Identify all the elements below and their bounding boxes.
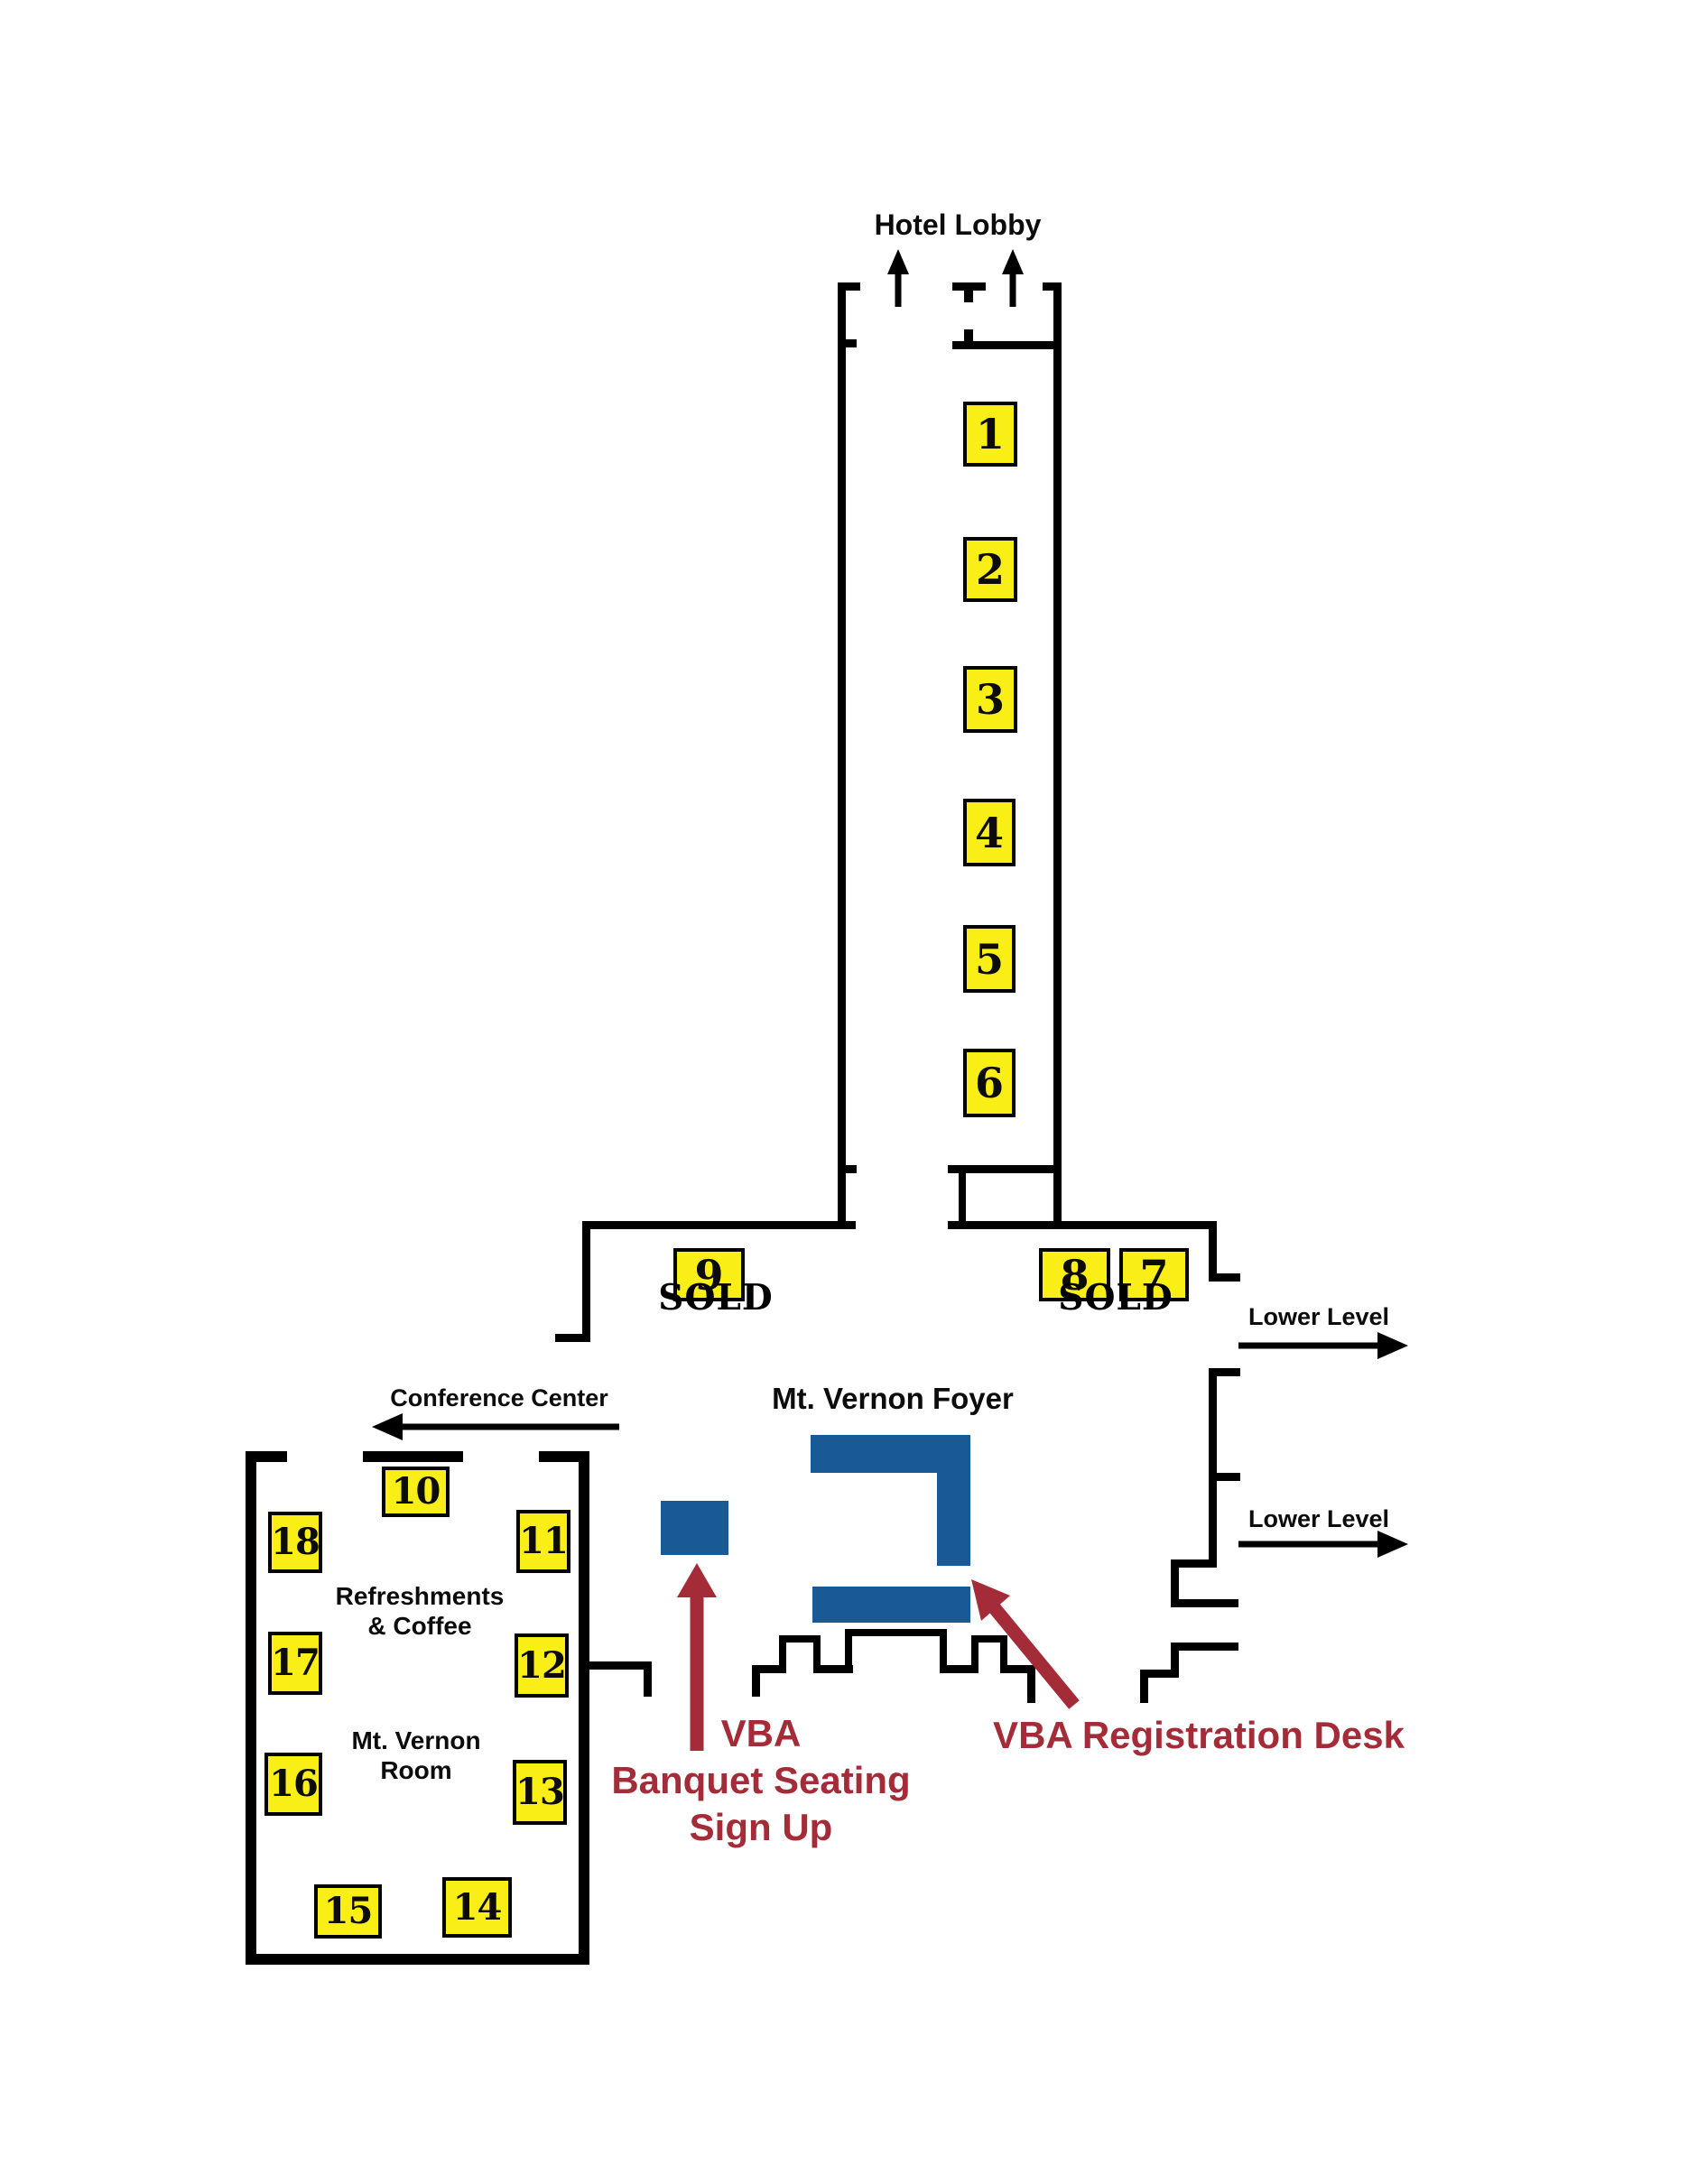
wall-segment bbox=[1140, 1670, 1148, 1703]
booth-number: 6 bbox=[975, 1062, 1004, 1104]
registration-desk-top bbox=[811, 1435, 970, 1473]
booth-12: 12 bbox=[515, 1633, 569, 1698]
mt-vernon-foyer-label: Mt. Vernon Foyer bbox=[772, 1382, 1014, 1417]
booth-16: 16 bbox=[264, 1753, 322, 1816]
registration-desk-side bbox=[937, 1473, 970, 1566]
wall-segment bbox=[845, 1629, 947, 1636]
booth-number: 14 bbox=[453, 1890, 502, 1926]
booth-4: 4 bbox=[963, 799, 1016, 866]
wall-segment bbox=[952, 282, 986, 291]
wall-segment bbox=[1053, 282, 1062, 1227]
booth-number: 17 bbox=[271, 1645, 320, 1681]
lower-level-lower-label: Lower Level bbox=[1248, 1505, 1389, 1534]
wall-segment bbox=[1027, 1665, 1035, 1703]
wall-segment bbox=[1171, 1643, 1238, 1651]
hotel-lobby-label: Hotel Lobby bbox=[875, 208, 1042, 243]
wall-segment bbox=[246, 1451, 256, 1965]
wall-segment bbox=[1209, 1473, 1240, 1481]
wall-segment bbox=[1043, 282, 1062, 291]
booth-3: 3 bbox=[963, 666, 1017, 733]
booth-1: 1 bbox=[963, 402, 1017, 467]
booth-5: 5 bbox=[963, 925, 1016, 993]
booth-number: 10 bbox=[392, 1474, 441, 1510]
room-line2: Room bbox=[351, 1755, 480, 1785]
wall-segment bbox=[1209, 1368, 1240, 1376]
booth-number: 18 bbox=[271, 1524, 320, 1560]
wall-segment bbox=[246, 1954, 589, 1965]
up-arrow-icon bbox=[887, 249, 909, 307]
mt-vernon-room-label: Mt. Vernon Room bbox=[351, 1726, 480, 1785]
wall-segment bbox=[952, 341, 1062, 349]
wall-segment bbox=[838, 282, 860, 291]
banquet-line1: VBA bbox=[611, 1710, 910, 1757]
booth-17: 17 bbox=[268, 1632, 322, 1695]
booth-number: 1 bbox=[976, 413, 1005, 455]
wall-segment bbox=[964, 329, 973, 341]
room-line1: Mt. Vernon bbox=[351, 1726, 480, 1755]
wall-segment bbox=[838, 1165, 857, 1173]
booth-number: 16 bbox=[269, 1766, 318, 1802]
wall-segment bbox=[579, 1451, 589, 1965]
wall-segment bbox=[838, 282, 846, 1229]
lower-level-upper-label: Lower Level bbox=[1248, 1303, 1389, 1332]
right-arrow-icon bbox=[1238, 1332, 1408, 1359]
wall-segment bbox=[959, 1173, 966, 1224]
right-arrow-icon bbox=[1238, 1531, 1408, 1558]
booth-number: 5 bbox=[975, 939, 1004, 980]
booth-2: 2 bbox=[963, 537, 1017, 602]
refreshments-line1: Refreshments bbox=[336, 1581, 505, 1611]
banquet-signup-table bbox=[661, 1501, 728, 1555]
wall-segment bbox=[1209, 1221, 1217, 1282]
booth-10: 10 bbox=[382, 1467, 450, 1517]
booth-number: 15 bbox=[324, 1893, 373, 1930]
wall-segment bbox=[964, 291, 973, 302]
booth-11: 11 bbox=[516, 1510, 570, 1573]
refreshments-line2: & Coffee bbox=[336, 1611, 505, 1641]
left-arrow-icon bbox=[372, 1413, 619, 1440]
floor-plan: 1 2 3 4 5 6 9 8 7 10 11 12 13 14 15 16 1… bbox=[0, 0, 1688, 2184]
conference-center-label: Conference Center bbox=[390, 1384, 608, 1413]
wall-segment bbox=[555, 1334, 582, 1342]
sold-label-booth-9: SOLD bbox=[658, 1281, 773, 1316]
wall-segment bbox=[1171, 1599, 1238, 1607]
booth-18: 18 bbox=[268, 1512, 322, 1573]
booth-14: 14 bbox=[442, 1877, 512, 1938]
registration-desk-label: VBA Registration Desk bbox=[993, 1713, 1405, 1758]
banquet-line3: Sign Up bbox=[611, 1804, 910, 1851]
wall-segment bbox=[838, 339, 857, 347]
booth-number: 2 bbox=[976, 549, 1005, 590]
up-arrow-icon bbox=[1002, 249, 1024, 307]
wall-segment bbox=[940, 1629, 947, 1670]
wall-segment bbox=[582, 1661, 652, 1670]
wall-segment bbox=[948, 1165, 1062, 1173]
wall-segment bbox=[582, 1221, 590, 1342]
banquet-signup-label: VBA Banquet Seating Sign Up bbox=[611, 1710, 910, 1851]
registration-desk-front bbox=[812, 1587, 970, 1623]
wall-segment bbox=[582, 1221, 856, 1229]
booth-number: 12 bbox=[517, 1648, 566, 1684]
refreshments-label: Refreshments & Coffee bbox=[336, 1581, 505, 1641]
banquet-line2: Banquet Seating bbox=[611, 1757, 910, 1804]
booth-13: 13 bbox=[513, 1760, 567, 1825]
wall-segment bbox=[1209, 1273, 1240, 1282]
booth-number: 3 bbox=[976, 679, 1005, 720]
wall-segment bbox=[644, 1661, 652, 1697]
booth-6: 6 bbox=[963, 1049, 1016, 1117]
wall-segment bbox=[1209, 1368, 1217, 1559]
booth-number: 4 bbox=[975, 812, 1004, 854]
sold-label-booths-7-8: SOLD bbox=[1058, 1281, 1173, 1316]
wall-segment bbox=[363, 1451, 463, 1462]
booth-15: 15 bbox=[314, 1884, 382, 1939]
booth-number: 11 bbox=[519, 1523, 568, 1559]
booth-number: 13 bbox=[515, 1774, 564, 1810]
wall-segment bbox=[948, 1221, 1217, 1229]
